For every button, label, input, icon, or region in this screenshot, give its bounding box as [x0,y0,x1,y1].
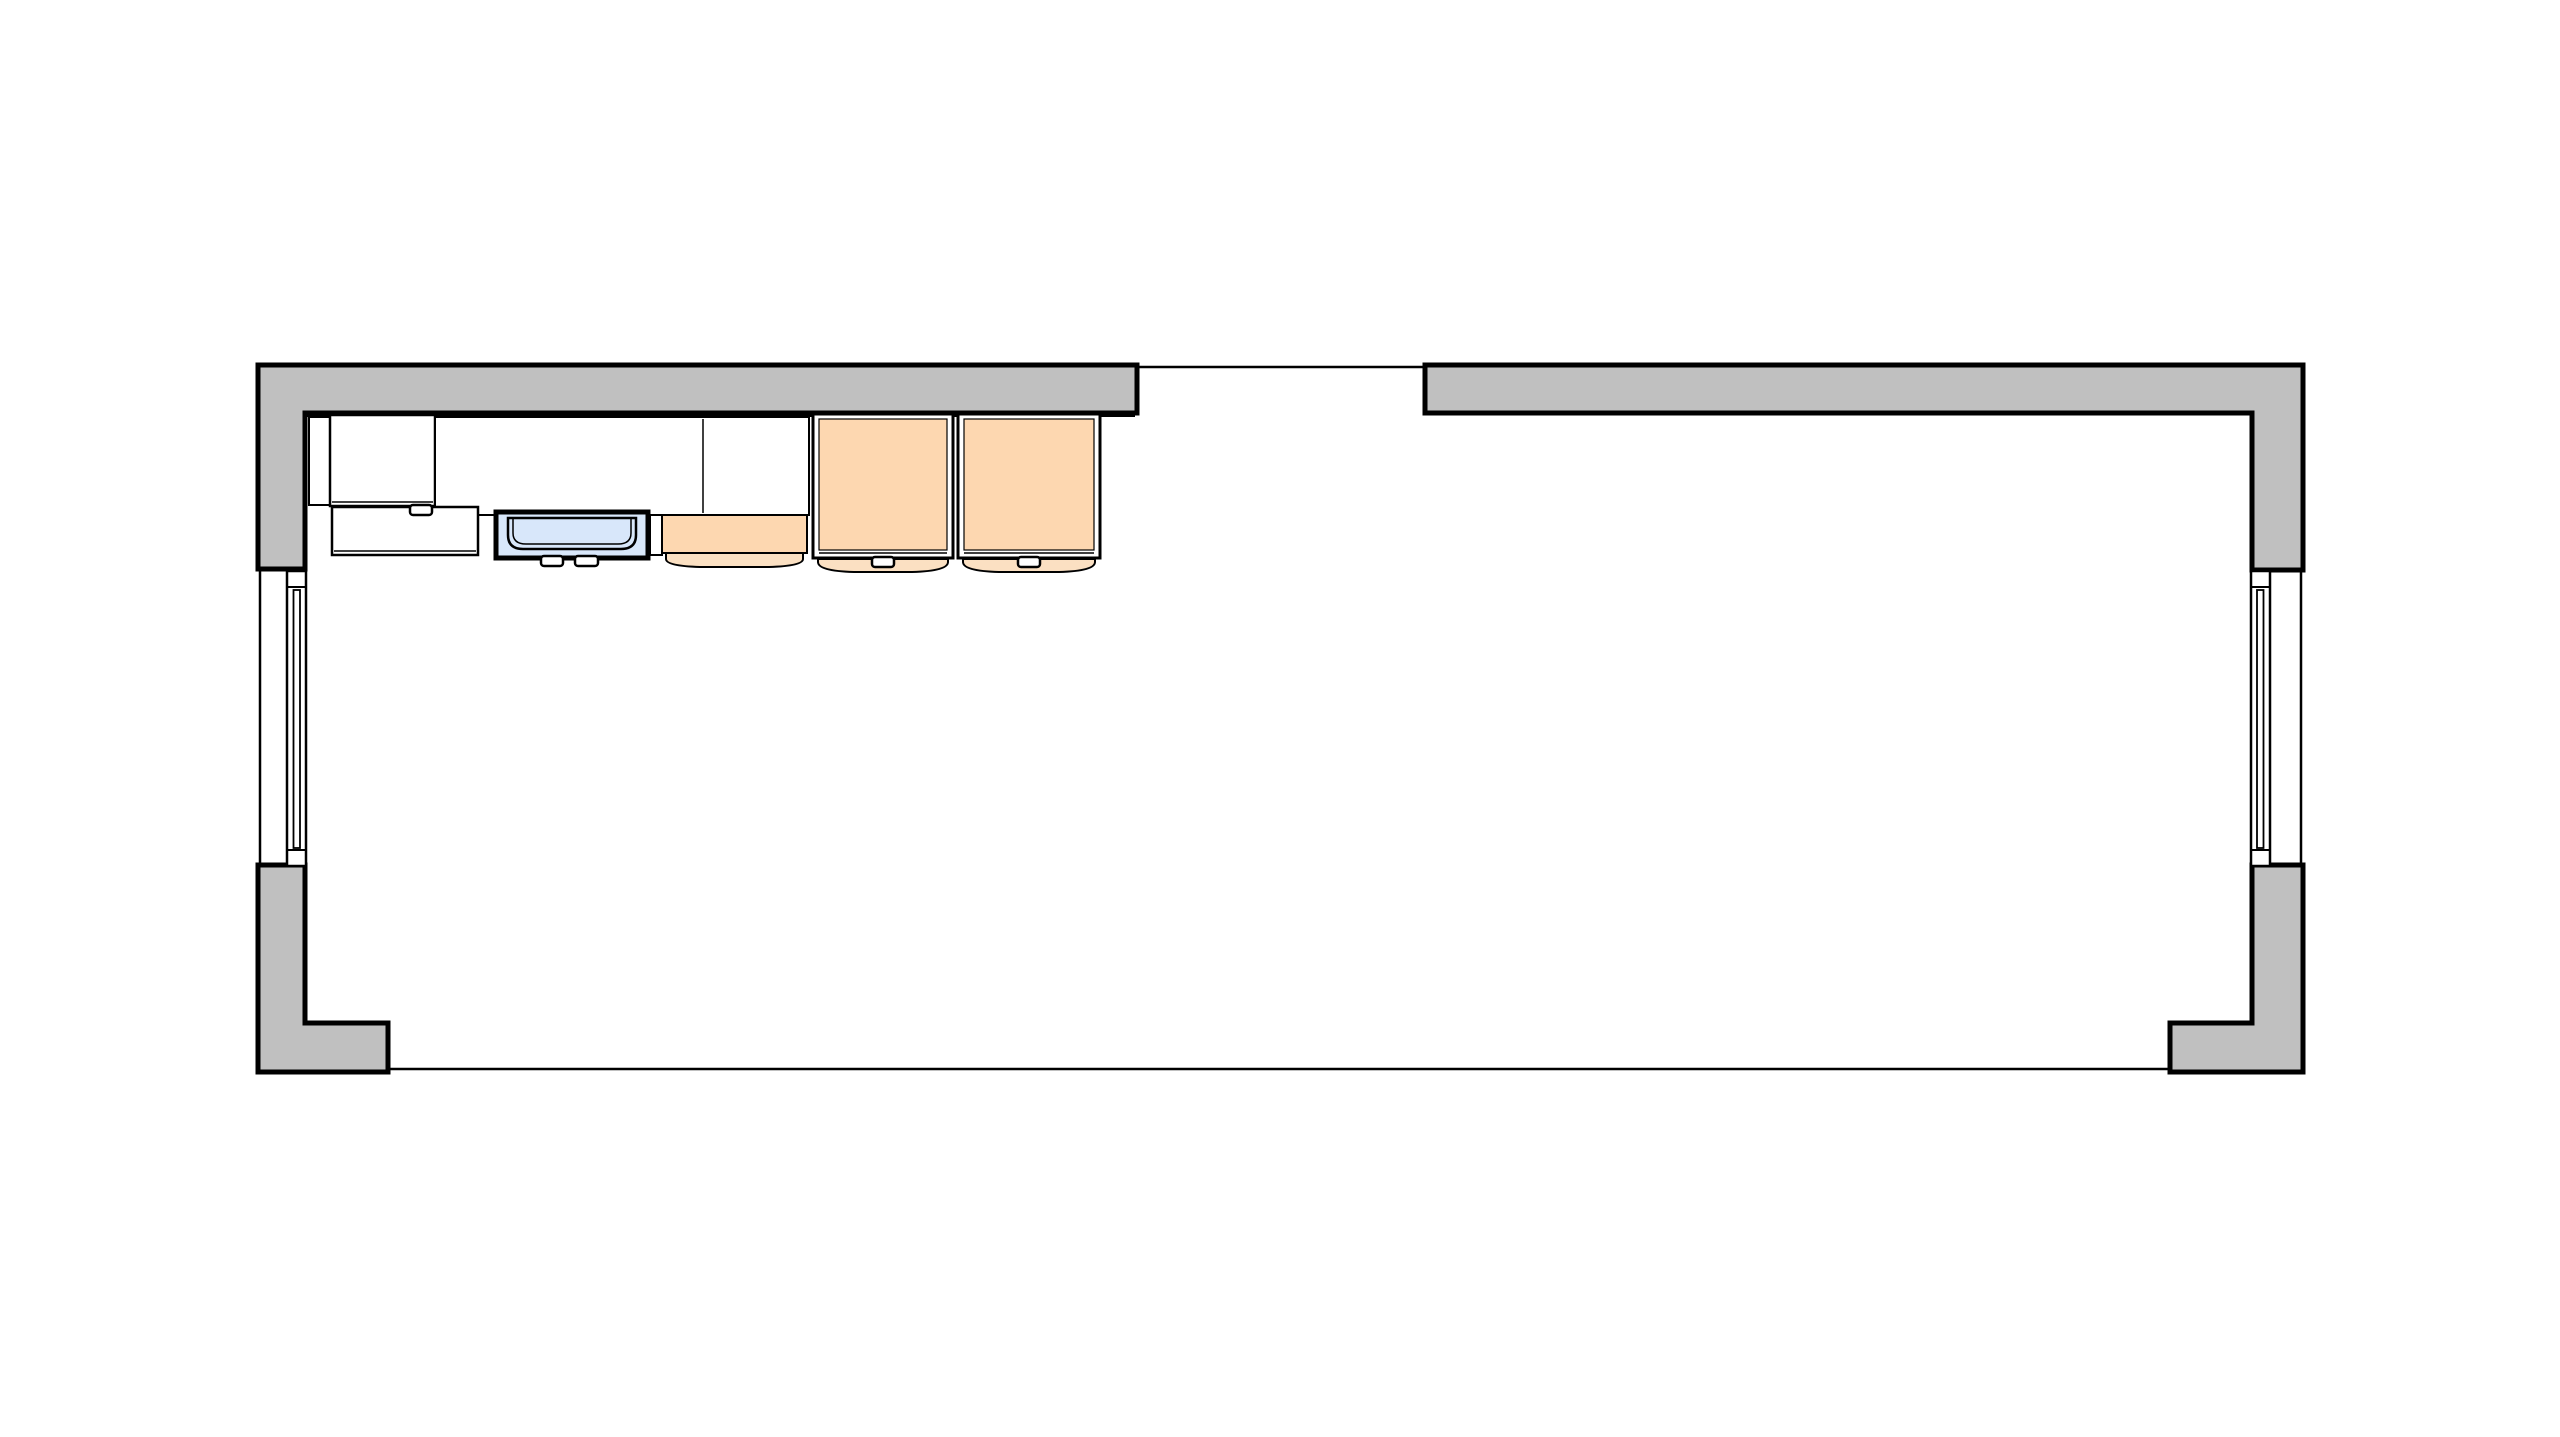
window-right[interactable] [2251,571,2301,866]
floorplan-drawing [0,0,2560,1437]
bench-front [666,553,803,567]
tall-cabinet-2[interactable] [958,414,1100,572]
window-left-sash [294,590,301,848]
filler-panel[interactable] [309,417,330,505]
tall-cabinet-1-door [819,419,947,550]
drawer-unit[interactable] [332,507,478,555]
tall-cabinet-1-handle [872,557,894,567]
countertop[interactable] [435,417,809,515]
sink-handle-right [575,556,598,566]
floorplan-canvas [0,0,2560,1437]
wall-top-right[interactable] [1425,365,2303,570]
bench-cabinet[interactable] [662,515,807,567]
tall-cabinet-2-door [964,419,1094,550]
sink-handle-left [541,556,563,566]
wall-bottom-right[interactable] [2170,865,2303,1072]
window-left[interactable] [260,571,306,866]
wall-bottom-left[interactable] [258,865,388,1072]
sink[interactable] [496,512,648,566]
sink-side-spacer [650,515,662,555]
window-right-sash [2257,590,2264,848]
upper-cabinet[interactable] [330,415,435,506]
drawer-handle [410,505,432,515]
kitchen-run [303,411,1135,572]
tall-cabinet-2-handle [1018,557,1040,567]
bench-top [662,515,807,553]
tall-cabinet-1[interactable] [813,414,953,572]
